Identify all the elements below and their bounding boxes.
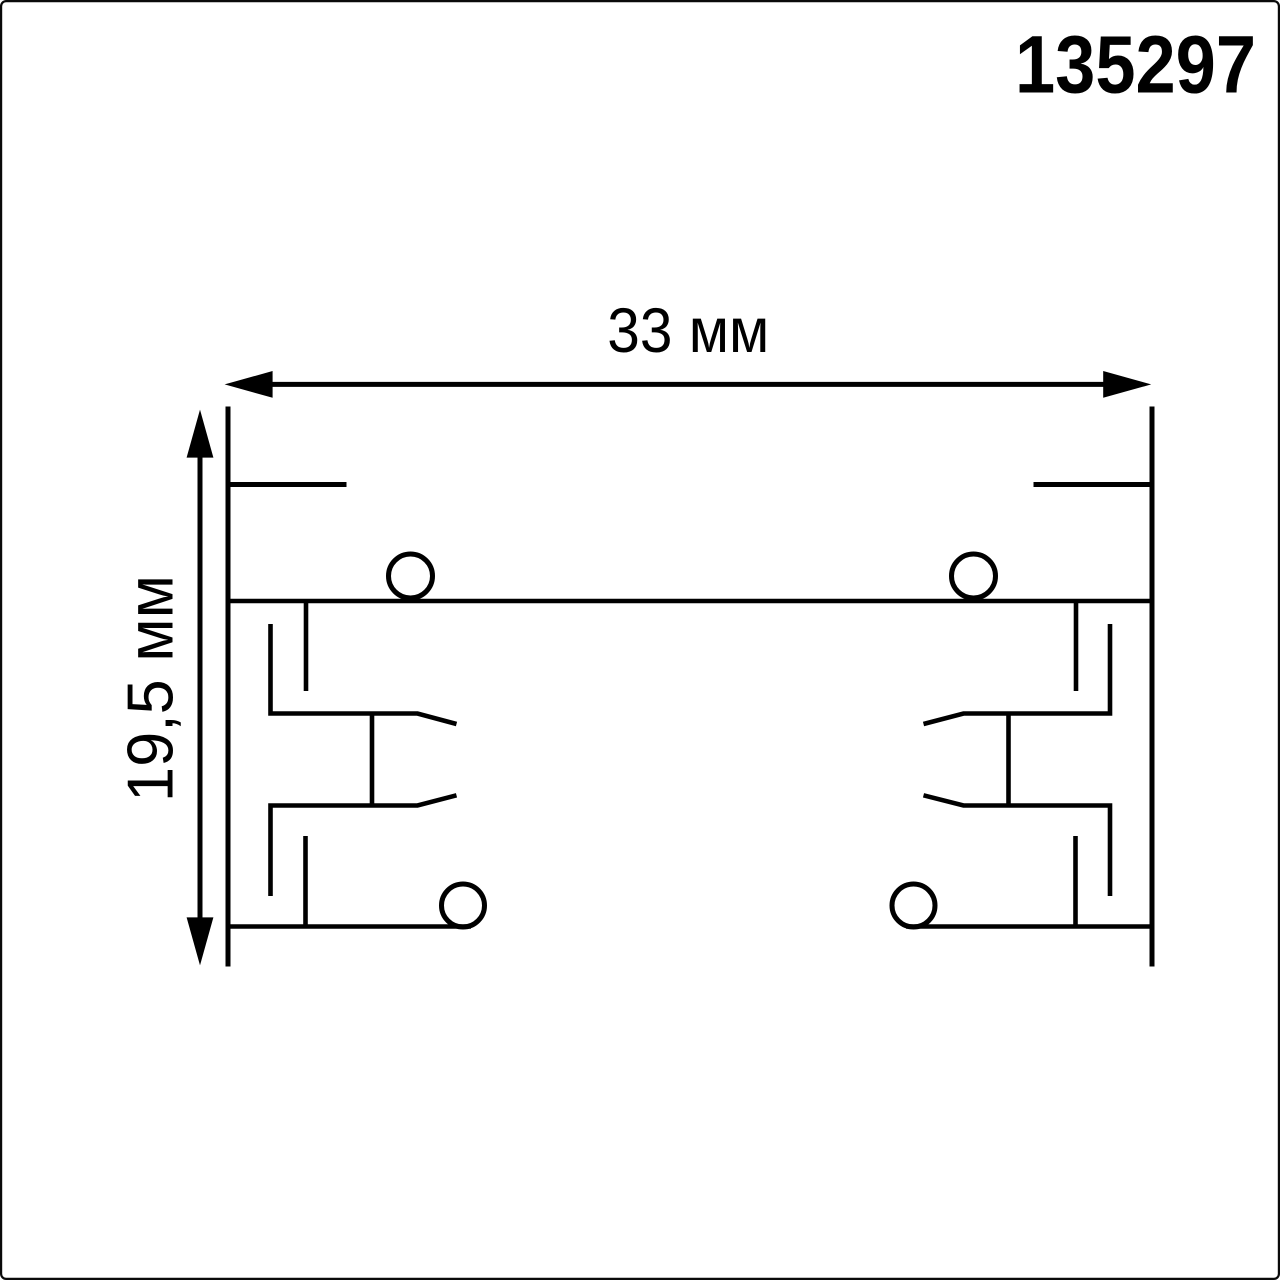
svg-text:135297: 135297 bbox=[1015, 20, 1256, 111]
svg-text:33 мм: 33 мм bbox=[607, 296, 769, 366]
svg-text:19,5 мм: 19,5 мм bbox=[115, 575, 187, 802]
